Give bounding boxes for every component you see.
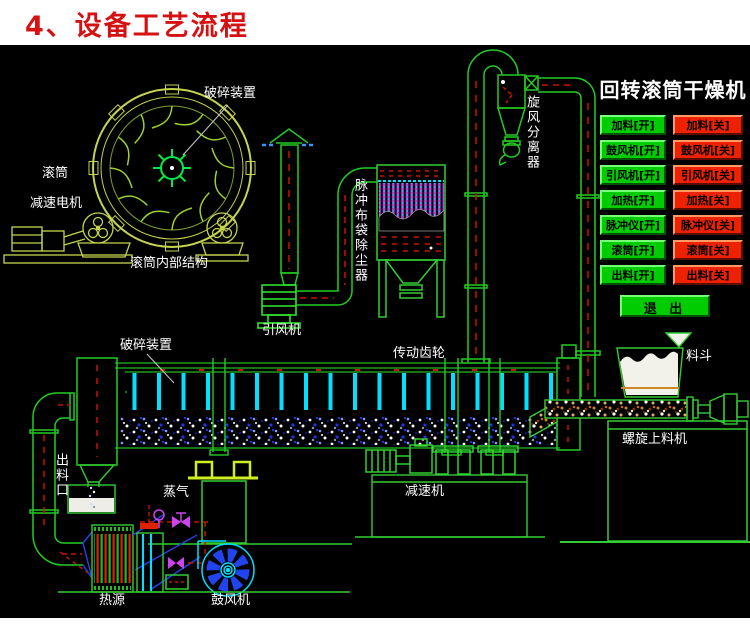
drum-pillar-support — [148, 462, 352, 544]
label-gear-motor: 减速电机 — [30, 197, 82, 211]
btn-pulse-off[interactable]: 脉冲仪[关] — [673, 215, 743, 235]
drum-discharge-hood — [70, 358, 117, 465]
label-discharge-port: 出料口 — [53, 453, 67, 498]
baghouse — [377, 165, 445, 317]
blower-fan — [198, 541, 254, 596]
btn-discharge-on[interactable]: 出料[开] — [600, 265, 666, 285]
btn-blower-off[interactable]: 鼓风机[关] — [673, 140, 743, 160]
exit-button[interactable]: 退 出 — [620, 295, 710, 317]
diagram-canvas: 破碎装置 滚筒 减速电机 滚筒内部结构 脉冲布袋除尘器 旋风分离器 引风机 破碎… — [0, 45, 750, 618]
btn-heating-on[interactable]: 加热[开] — [600, 190, 666, 210]
btn-induced-fan-off[interactable]: 引风机[关] — [673, 165, 743, 185]
label-steam: 蒸气 — [163, 486, 189, 500]
screw-feeder — [530, 394, 748, 437]
panel-title: 回转滚筒干燥机 — [596, 74, 750, 103]
label-induced-fan: 引风机 — [262, 324, 301, 338]
page-header: 4、设备工艺流程 — [0, 0, 750, 45]
label-drum-internal: 滚筒内部结构 — [130, 257, 208, 271]
page-title: 4、设备工艺流程 — [25, 4, 249, 43]
exhaust-stack — [262, 129, 316, 285]
reducer-drive — [355, 439, 545, 537]
btn-feed-on[interactable]: 加料[开] — [600, 115, 666, 135]
btn-pulse-on[interactable]: 脉冲仪[开] — [600, 215, 666, 235]
btn-induced-fan-on[interactable]: 引风机[开] — [600, 165, 666, 185]
btn-heating-off[interactable]: 加热[关] — [673, 190, 743, 210]
drum-end-box — [557, 345, 580, 450]
induced-fan — [258, 285, 300, 328]
label-hopper: 料斗 — [686, 350, 712, 364]
gear-motor-rollers — [4, 213, 248, 263]
btn-drum-off[interactable]: 滚筒[关] — [673, 240, 743, 260]
footer-strip — [0, 618, 750, 625]
label-crusher-drum: 破碎装置 — [120, 339, 172, 353]
screen: 4、设备工艺流程 — [0, 0, 750, 625]
feed-hopper — [617, 333, 691, 397]
label-bag-filter: 脉冲布袋除尘器 — [352, 178, 366, 283]
label-heat-source: 热源 — [99, 594, 125, 608]
cyclone-downcomer-duct — [575, 78, 600, 397]
label-crusher-top: 破碎装置 — [204, 87, 256, 101]
label-drum: 滚筒 — [42, 167, 68, 181]
btn-discharge-off[interactable]: 出料[关] — [673, 265, 743, 285]
label-cyclone: 旋风分离器 — [524, 95, 538, 170]
label-reducer: 减速机 — [405, 485, 444, 499]
label-screw-feeder: 螺旋上料机 — [622, 433, 687, 447]
panel-buttons: 加料[开] 加料[关] 鼓风机[开] 鼓风机[关] 引风机[开] 引风机[关] … — [600, 115, 743, 285]
discharge-hopper — [68, 465, 115, 513]
label-blower: 鼓风机 — [211, 594, 250, 608]
rotary-drum — [115, 363, 560, 448]
btn-drum-on[interactable]: 滚筒[开] — [600, 240, 666, 260]
btn-feed-off[interactable]: 加料[关] — [673, 115, 743, 135]
label-drive-gear: 传动齿轮 — [393, 347, 445, 361]
btn-blower-on[interactable]: 鼓风机[开] — [600, 140, 666, 160]
drum-cross-section — [89, 85, 255, 251]
